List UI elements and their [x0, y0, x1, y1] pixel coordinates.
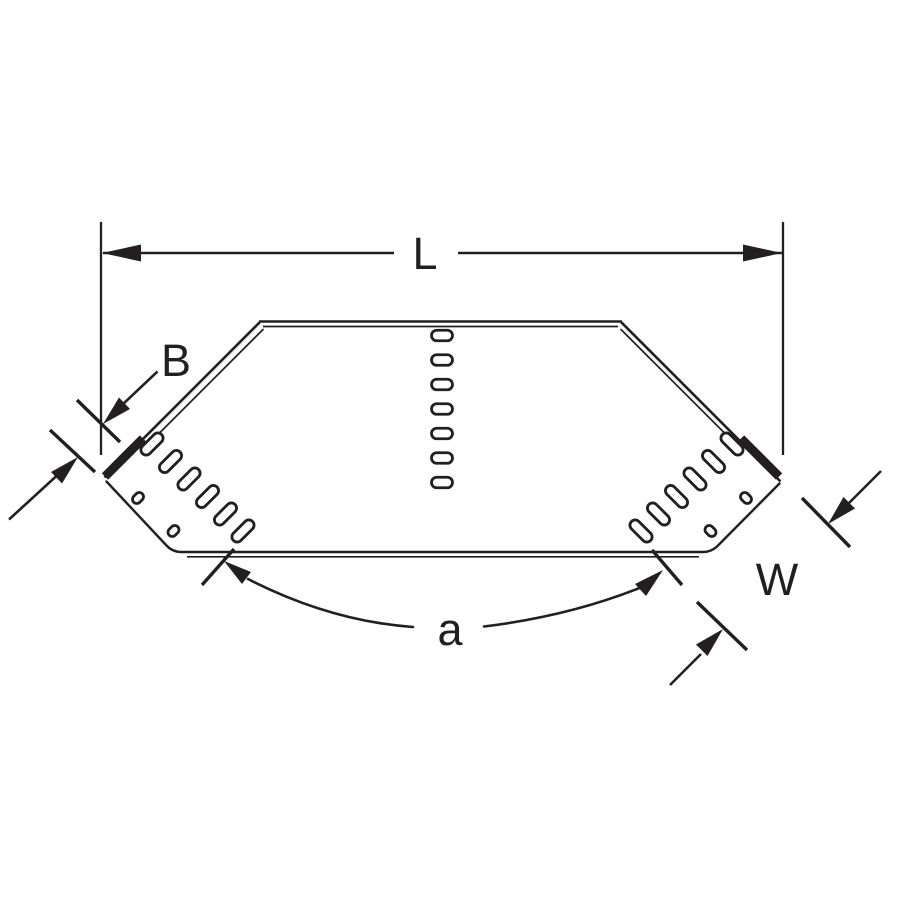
rail-tick-upper	[77, 400, 120, 442]
left-wall-slot	[157, 448, 184, 475]
right-wall-slot	[700, 448, 727, 475]
center-slot	[432, 330, 453, 341]
right-wall-slot-row	[628, 431, 754, 545]
angle-arc-right	[484, 587, 642, 627]
right-wall-slot	[628, 518, 655, 545]
dimension-width: W	[670, 471, 881, 685]
dimension-angle: a	[202, 549, 682, 655]
right-wall-hole	[739, 491, 753, 505]
label-angle: a	[437, 604, 463, 655]
left-wall-slot	[176, 466, 203, 493]
length-arrowhead-right	[743, 245, 782, 262]
right-wall-hole	[703, 524, 717, 538]
rail-arrowhead-lower	[51, 457, 78, 484]
right-wall-slot	[645, 501, 672, 528]
rail-leader-lower	[9, 476, 57, 520]
center-slot	[432, 355, 453, 366]
width-leader-lower	[670, 654, 701, 685]
right-wall-slot	[682, 466, 709, 493]
center-slot	[432, 404, 453, 415]
label-overall-length: L	[412, 228, 437, 279]
left-wall-slot	[230, 518, 257, 545]
left-wall-slot	[139, 431, 166, 458]
center-slot	[432, 477, 453, 488]
angle-arrowhead-right	[635, 570, 663, 596]
left-end-cut	[105, 439, 143, 477]
technical-drawing: L B W a	[0, 0, 900, 900]
label-width: W	[756, 554, 799, 605]
center-slot	[432, 428, 453, 439]
drawing-canvas: L B W a	[0, 0, 900, 900]
left-wall-hole	[166, 524, 180, 538]
center-slot-column	[432, 330, 453, 488]
left-wall-hole	[131, 491, 145, 505]
angle-arc-left	[248, 579, 413, 627]
left-wall-slot	[194, 483, 221, 510]
right-wall-slot	[663, 483, 690, 510]
center-slot	[432, 453, 453, 464]
left-wall-slot	[212, 501, 239, 528]
right-end-cut	[741, 439, 779, 477]
center-slot	[432, 379, 453, 390]
angle-arrowhead-left	[224, 561, 251, 584]
right-wall-slot	[719, 431, 746, 458]
length-arrowhead-left	[102, 245, 141, 262]
label-side-rail: B	[161, 335, 191, 386]
width-arrowhead-lower	[696, 629, 723, 656]
width-leader-upper	[846, 471, 881, 506]
